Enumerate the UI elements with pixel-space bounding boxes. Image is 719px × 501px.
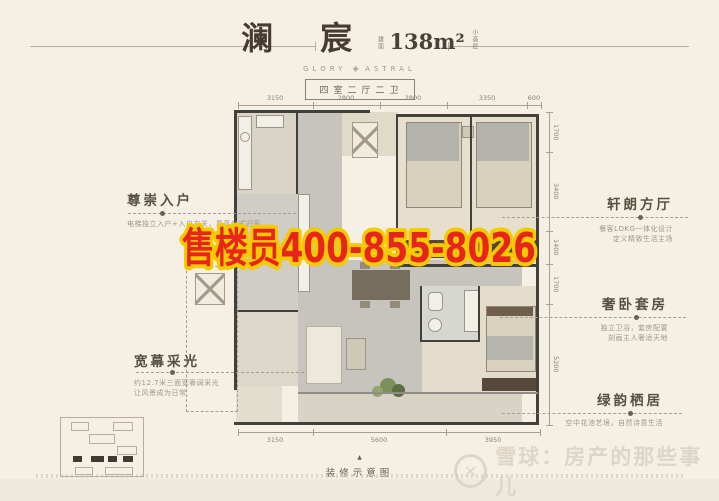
wall (396, 114, 538, 117)
kitchen-counter (238, 116, 252, 190)
leader-dot (170, 370, 175, 375)
desc-line: 让风景成为日常 (134, 388, 284, 398)
leader-dot (638, 215, 643, 220)
sofa (306, 326, 342, 384)
wall (478, 286, 480, 342)
area-prefix: 建面 (376, 36, 383, 50)
leader-dot (160, 211, 165, 216)
floorplan-poster: 澜 宸 建面 138m² 小高层 GLORY ◈ ASTRAL 四室二厅二卫 3… (0, 0, 719, 479)
dim-top-4: 3350 (467, 94, 507, 102)
leader-dot (634, 315, 639, 320)
diamond-ornament-icon: ◈ (353, 64, 359, 73)
dim-bottom-2: 5600 (359, 436, 399, 444)
wall (296, 112, 298, 194)
dim-top-2: 2800 (326, 94, 366, 102)
wash-basin (428, 318, 442, 332)
dim-right-5: 5200 (552, 344, 560, 384)
watermark-text: 雪球：房产的那些事儿 (495, 441, 719, 501)
dim-line-top (238, 105, 541, 106)
sink (240, 132, 250, 142)
desc-line: 餐客LDKG一体化设计 (545, 224, 673, 234)
bed-2-blanket (477, 123, 529, 161)
area-suffix: 小高层 (471, 29, 478, 50)
chair (360, 301, 370, 308)
bathtub (464, 290, 479, 332)
dim-bottom-1: 3150 (255, 436, 295, 444)
subtitle-left: GLORY (303, 65, 346, 73)
nightstand (462, 126, 474, 138)
dim-top-1: 3150 (255, 94, 295, 102)
dim-top-5: 600 (514, 94, 554, 102)
dim-tick (238, 429, 239, 436)
wall (420, 286, 422, 342)
disclaimer-strip (36, 474, 684, 478)
watermark: ✕ 雪球：房产的那些事儿 (454, 441, 719, 501)
dim-tick (313, 102, 314, 109)
site-block (117, 446, 137, 455)
plant (392, 384, 405, 397)
master-headboard (487, 307, 533, 316)
toilet (428, 292, 443, 311)
wall (420, 340, 480, 342)
dim-tick (313, 429, 314, 436)
site-block (71, 422, 89, 431)
watermark-logo-icon: ✕ (454, 454, 487, 488)
desc-line: 独立卫浴，套房配置 (540, 323, 668, 333)
master-blanket (487, 336, 533, 360)
bed-1-blanket (407, 123, 459, 161)
dim-tick (446, 429, 447, 436)
dim-tick (447, 102, 448, 109)
feature-title-entry: 尊崇入户 (127, 189, 193, 209)
dim-top-3: 2800 (393, 94, 433, 102)
area-value: 138m² (389, 31, 464, 52)
duct-hatch (352, 122, 378, 158)
feature-desc-hall: 餐客LDKG一体化设计 定义精致生活主场 (545, 224, 673, 244)
coffee-table (346, 338, 366, 370)
feature-desc-green: 空中花池艺境，自然诗意生活 (515, 418, 663, 428)
dim-tick (238, 102, 239, 109)
wall (234, 422, 539, 425)
leader-line (136, 372, 304, 373)
stove (256, 115, 284, 128)
phone-overlay: 售楼员400-855-8026 (176, 218, 542, 276)
master-wardrobe (482, 378, 536, 391)
sales-phone-number: 售楼员400-855-8026 (182, 224, 536, 272)
site-block (113, 422, 133, 431)
dim-tick (540, 429, 541, 436)
dim-tick (380, 102, 381, 109)
site-block (89, 434, 115, 444)
feature-desc-suite: 独立卫浴，套房配置 刻画主人奢适天地 (540, 323, 668, 343)
dim-tick (546, 152, 553, 153)
dim-tick (541, 102, 542, 109)
desc-line: 定义精致生活主场 (545, 234, 673, 244)
dim-line-bottom (238, 432, 541, 433)
desc-line: 约12.7米三面宽奢阔采光 (134, 378, 284, 388)
chair (390, 301, 400, 308)
leader-line (502, 413, 682, 414)
balcony-area (298, 394, 522, 424)
feature-title-green: 绿韵栖居 (535, 389, 663, 409)
subtitle-right: ASTRAL (365, 65, 416, 73)
wall (234, 110, 370, 113)
feature-title-suite: 奢卧套房 (540, 293, 668, 313)
elevator-shaft (195, 273, 225, 305)
wall (236, 310, 298, 312)
feature-desc-lighting: 约12.7米三面宽奢阔采光 让风景成为日常 (134, 378, 284, 398)
desc-line: 刻画主人奢适天地 (540, 333, 668, 343)
subtitle: GLORY ◈ ASTRAL (0, 64, 719, 73)
dim-tick (527, 102, 528, 109)
leader-line (500, 317, 686, 318)
page-title: 澜 宸 (241, 22, 370, 54)
leader-line (128, 213, 296, 214)
title-block: 澜 宸 建面 138m² 小高层 (0, 22, 719, 54)
leader-dot (628, 411, 633, 416)
feature-title-lighting: 宽幕采光 (134, 350, 200, 370)
dim-right-1: 1700 (552, 112, 560, 152)
feature-title-hall: 轩朗方厅 (545, 193, 673, 213)
study-area (236, 312, 298, 386)
balcony-window (298, 392, 538, 394)
dim-line-right (549, 112, 550, 425)
